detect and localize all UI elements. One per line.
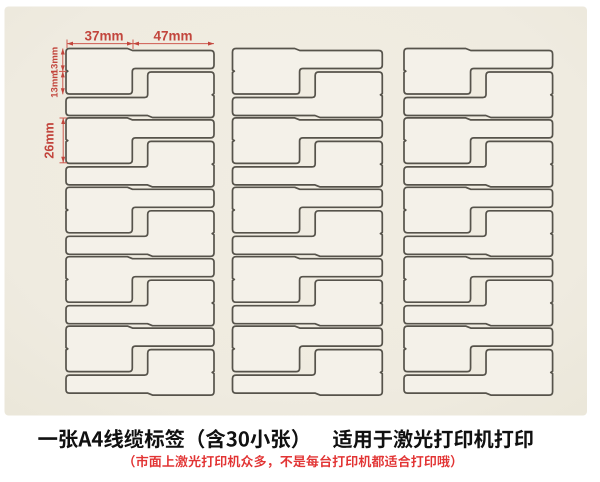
svg-text:47mm: 47mm: [153, 29, 192, 44]
svg-text:26mm: 26mm: [43, 122, 57, 158]
svg-text:37mm: 37mm: [84, 29, 123, 44]
svg-text:13mm: 13mm: [50, 47, 61, 74]
svg-text:13mm: 13mm: [50, 70, 61, 97]
